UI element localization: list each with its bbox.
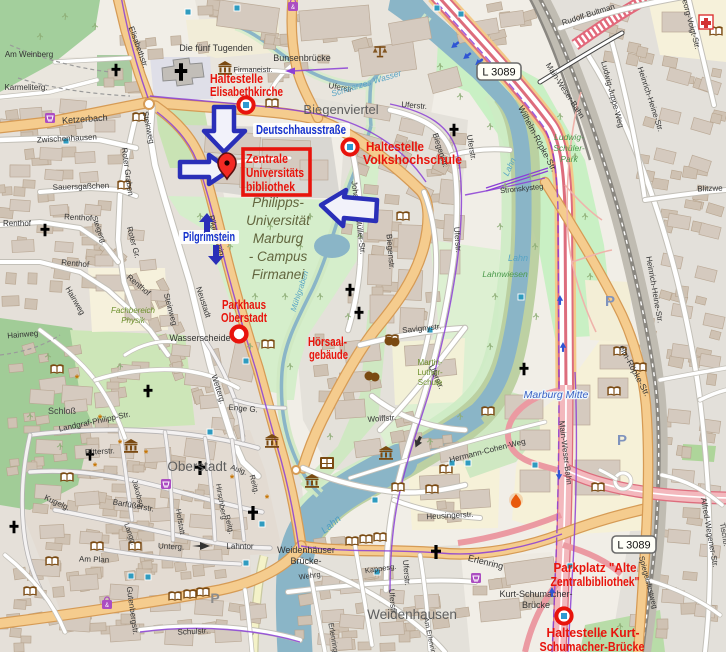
svg-text:Blitzwe: Blitzwe <box>697 184 723 194</box>
svg-text:Schloß: Schloß <box>48 406 77 416</box>
svg-text:Universitäts: Universitäts <box>246 166 304 180</box>
svg-text:&: & <box>105 603 109 609</box>
svg-text:L 3089: L 3089 <box>482 67 515 79</box>
svg-text:Elisabethkirche: Elisabethkirche <box>210 85 283 99</box>
svg-text:P: P <box>210 590 219 606</box>
svg-text:&: & <box>291 5 295 11</box>
svg-text:Haltestelle: Haltestelle <box>366 140 424 154</box>
svg-text:bibliothek: bibliothek <box>246 180 295 194</box>
svg-text:Fachbereich: Fachbereich <box>111 306 156 315</box>
svg-text:Ludwig-: Ludwig- <box>554 132 584 142</box>
svg-text:*: * <box>265 493 270 505</box>
svg-text:Lahnwiesen: Lahnwiesen <box>482 269 528 279</box>
svg-text:Weidenhausen: Weidenhausen <box>367 607 457 622</box>
svg-text:Zentralbibliothek": Zentralbibliothek" <box>551 575 640 589</box>
svg-text:Renthof: Renthof <box>64 212 93 222</box>
svg-text:Brücke: Brücke <box>522 600 550 610</box>
svg-text:Lahntor: Lahntor <box>226 542 253 551</box>
svg-text:Marburg: Marburg <box>253 231 304 246</box>
svg-text:Martin-: Martin- <box>418 358 443 367</box>
svg-text:Haltestelle Kurt-: Haltestelle Kurt- <box>547 626 640 640</box>
svg-text:- Campus: - Campus <box>249 249 308 264</box>
svg-text:Firmanei: Firmanei <box>252 267 306 282</box>
svg-text:Renthof: Renthof <box>3 219 32 228</box>
svg-text:Am Weinberg: Am Weinberg <box>5 50 53 59</box>
svg-text:Oberstadt: Oberstadt <box>221 311 268 325</box>
svg-text:*: * <box>75 373 80 385</box>
svg-text:Wasserscheide: Wasserscheide <box>169 333 230 343</box>
svg-text:P: P <box>605 293 615 310</box>
svg-text:Weidenhäuser: Weidenhäuser <box>277 545 335 555</box>
svg-text:Kurt-Schumacher-: Kurt-Schumacher- <box>499 589 572 599</box>
svg-text:Biegenviertel: Biegenviertel <box>303 102 378 117</box>
svg-text:Marburg Mitte: Marburg Mitte <box>524 389 589 401</box>
svg-text:Schumacher-Brücke: Schumacher-Brücke <box>540 640 645 652</box>
svg-text:Lahn: Lahn <box>508 253 528 263</box>
svg-text:P: P <box>617 432 627 449</box>
svg-text:Deutschhausstraße: Deutschhausstraße <box>256 123 346 137</box>
svg-text:Oberstadt: Oberstadt <box>167 459 227 474</box>
svg-text:Schulstr.: Schulstr. <box>177 626 208 637</box>
svg-text:Physik: Physik <box>121 316 146 325</box>
svg-text:Pilgrimstein: Pilgrimstein <box>183 230 235 244</box>
svg-text:L 3089: L 3089 <box>617 540 650 552</box>
svg-text:Brücke-: Brücke- <box>290 556 321 566</box>
svg-text:Schüler-: Schüler- <box>553 143 585 153</box>
svg-text:Haltestelle: Haltestelle <box>210 72 263 86</box>
svg-text:Parkhaus: Parkhaus <box>222 298 266 312</box>
svg-text:Unterg.: Unterg. <box>158 541 185 551</box>
svg-text:*: * <box>144 448 149 460</box>
svg-text:Luther-: Luther- <box>417 368 443 377</box>
svg-text:Universität: Universität <box>246 213 311 228</box>
svg-text:Zentrale: Zentrale <box>246 152 288 166</box>
svg-text:Philipps-: Philipps- <box>252 195 304 210</box>
svg-text:Karmeliterg.: Karmeliterg. <box>4 83 47 92</box>
svg-text:Hörsaal-: Hörsaal- <box>308 335 347 349</box>
svg-text:Ritterstr.: Ritterstr. <box>85 446 115 457</box>
svg-text:Parkplatz "Alte: Parkplatz "Alte <box>554 561 637 575</box>
svg-text:Am Plan: Am Plan <box>79 554 110 564</box>
svg-text:gebäude: gebäude <box>309 348 348 362</box>
svg-text:Die fünf Tugenden: Die fünf Tugenden <box>179 43 253 53</box>
svg-text:*: * <box>118 438 123 450</box>
svg-text:Schule: Schule <box>418 378 443 387</box>
svg-text:Bunsenbrücke: Bunsenbrücke <box>273 53 331 63</box>
svg-text:Volkshochschule: Volkshochschule <box>363 153 462 167</box>
svg-text:Park: Park <box>560 154 578 164</box>
svg-text:*: * <box>93 461 98 473</box>
svg-text:*: * <box>230 473 235 485</box>
